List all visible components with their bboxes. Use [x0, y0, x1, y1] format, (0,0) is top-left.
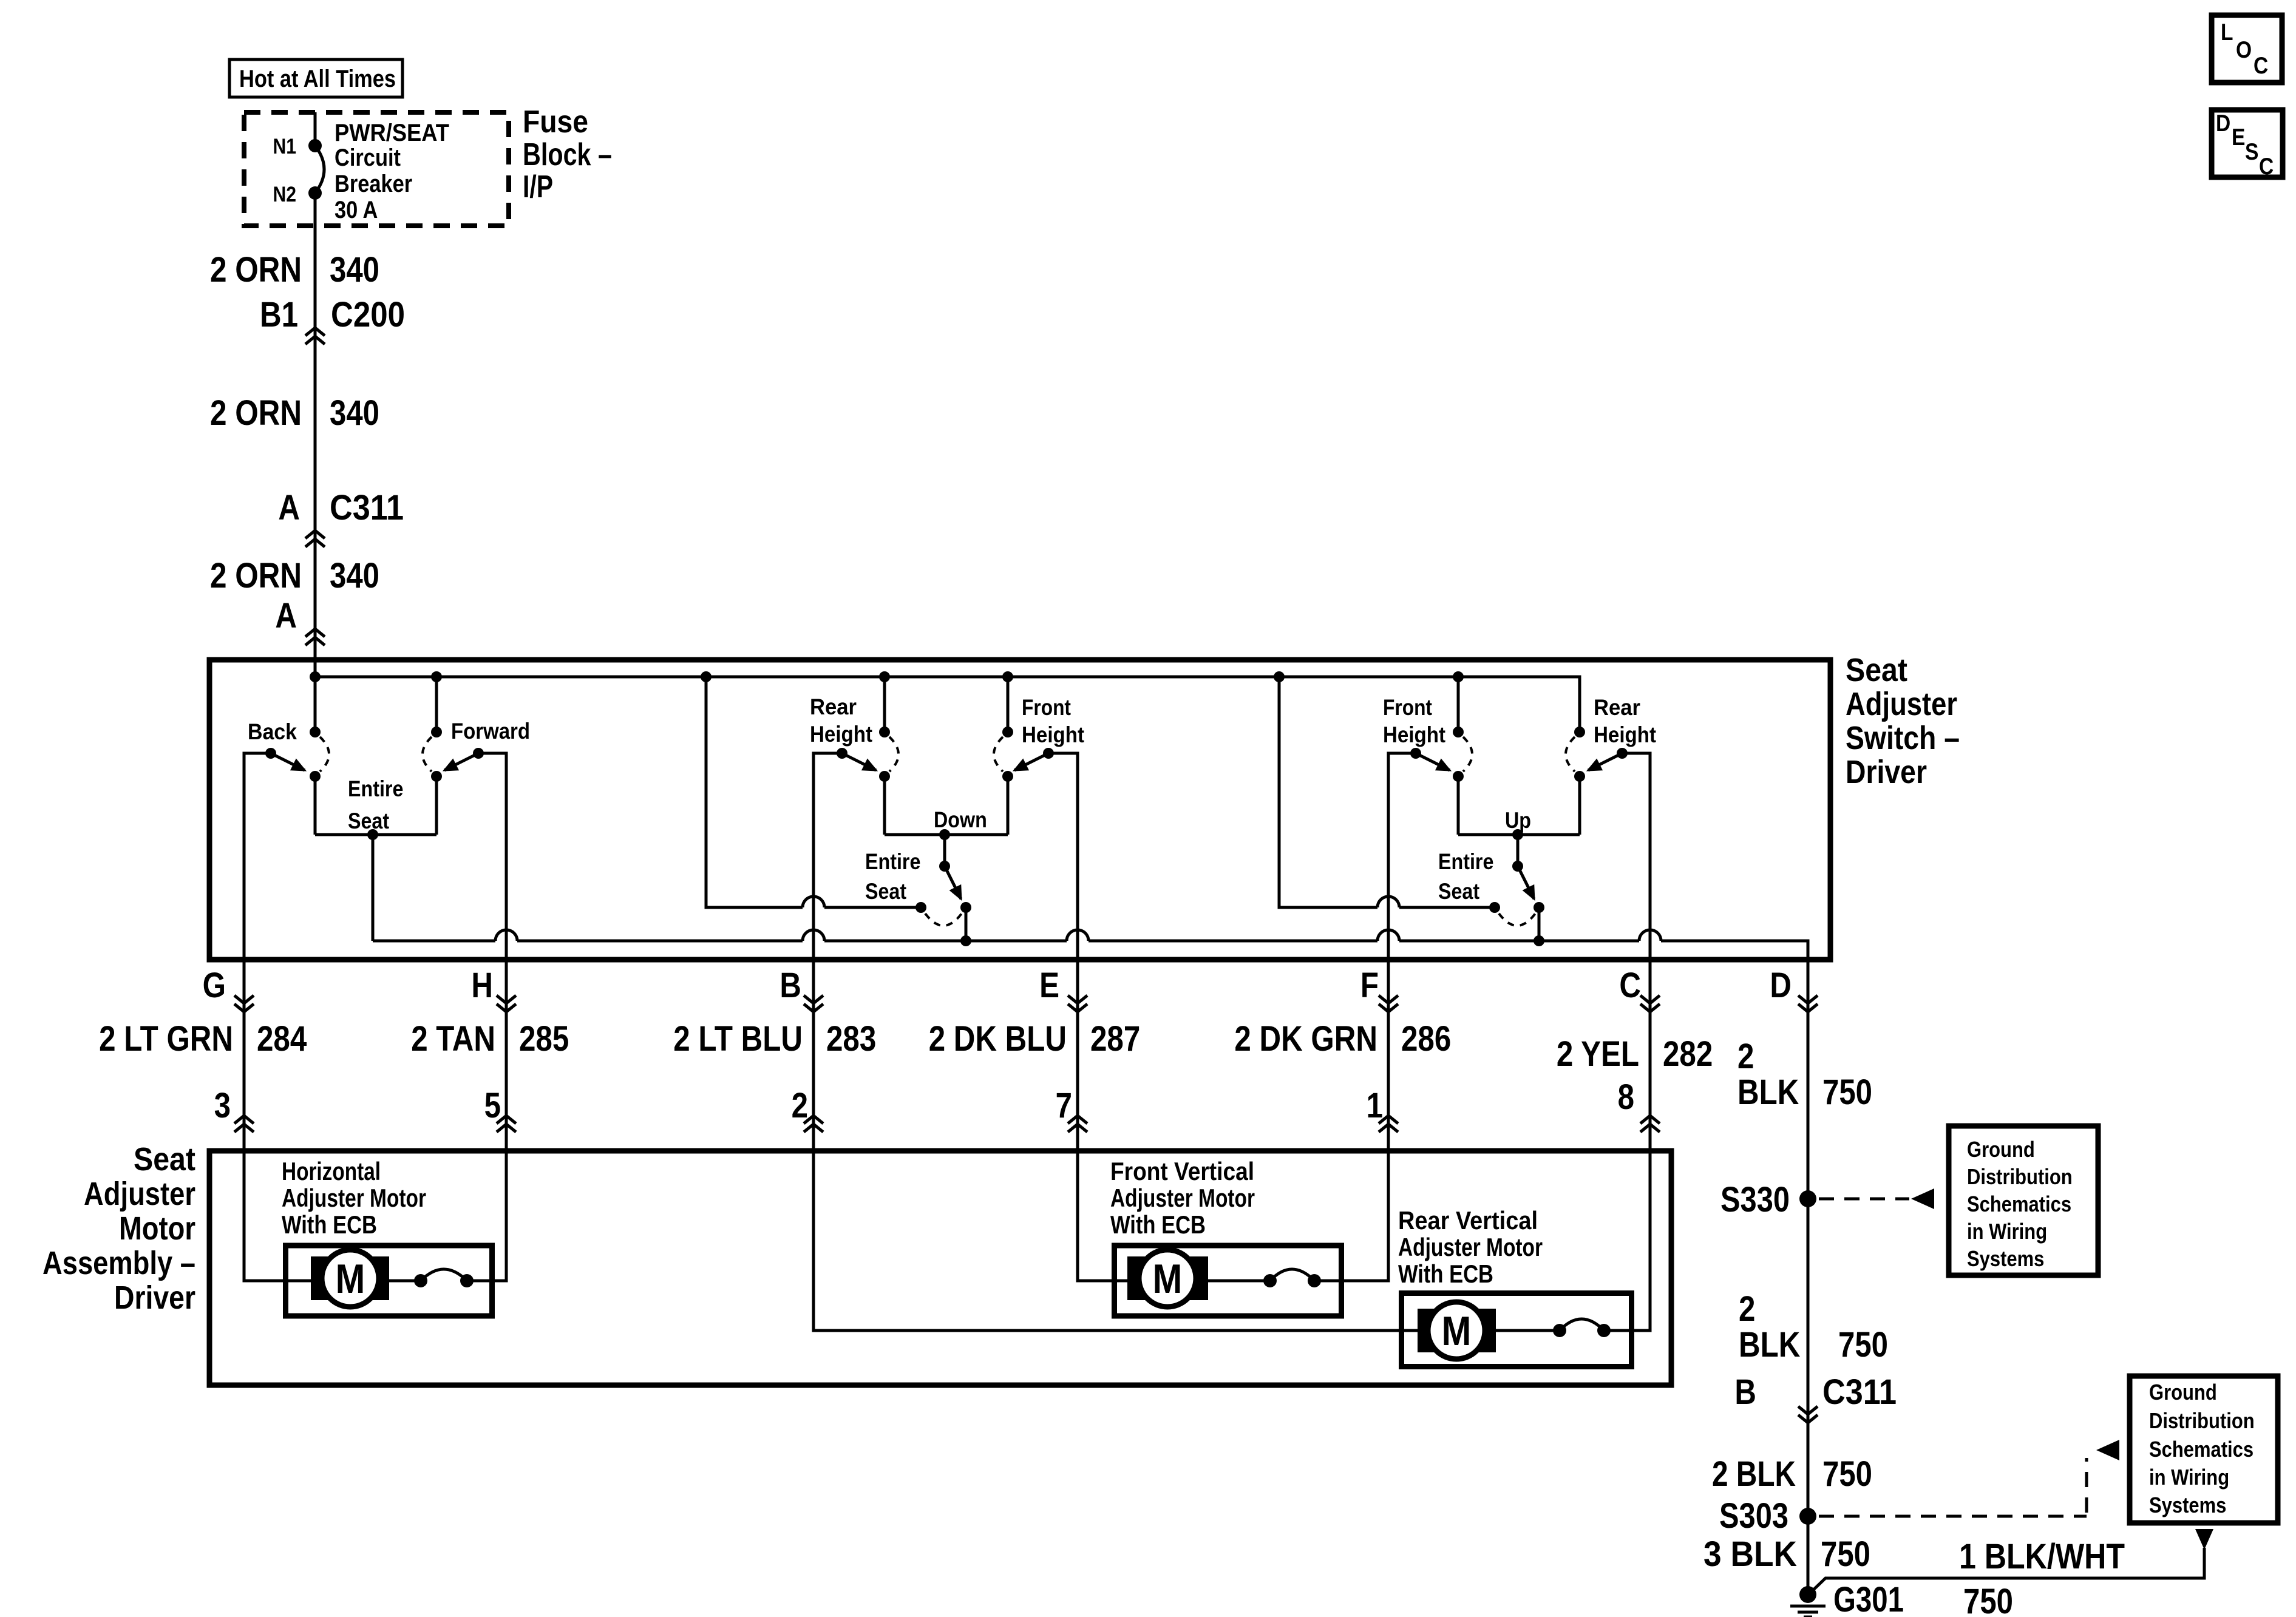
svg-text:Horizontal: Horizontal: [282, 1157, 381, 1185]
svg-text:Seat: Seat: [1846, 652, 1907, 688]
svg-text:285: 285: [519, 1019, 569, 1059]
svg-text:283: 283: [826, 1019, 876, 1059]
svg-text:F: F: [1360, 966, 1379, 1005]
svg-text:2 ORN: 2 ORN: [210, 250, 302, 290]
svg-text:M: M: [1153, 1256, 1183, 1302]
svg-text:M: M: [336, 1256, 365, 1302]
svg-text:340: 340: [330, 556, 379, 595]
svg-text:Adjuster Motor: Adjuster Motor: [1398, 1233, 1543, 1261]
svg-text:340: 340: [330, 250, 379, 290]
svg-text:Seat: Seat: [134, 1141, 195, 1178]
svg-text:With ECB: With ECB: [1398, 1259, 1493, 1288]
svg-text:Ground: Ground: [2149, 1380, 2217, 1405]
svg-text:2 ORN: 2 ORN: [210, 393, 302, 433]
svg-text:Height: Height: [1022, 722, 1084, 747]
svg-text:L: L: [2221, 19, 2233, 46]
svg-text:Schematics: Schematics: [1967, 1192, 2071, 1216]
svg-text:Driver: Driver: [114, 1280, 195, 1316]
svg-text:2 DK BLU: 2 DK BLU: [929, 1019, 1067, 1059]
svg-text:Height: Height: [810, 721, 872, 747]
svg-text:Ground: Ground: [1967, 1137, 2035, 1162]
svg-text:Seat: Seat: [348, 808, 390, 833]
svg-text:Entire: Entire: [348, 776, 403, 801]
svg-text:Height: Height: [1383, 722, 1445, 747]
svg-text:S303: S303: [1719, 1496, 1788, 1536]
svg-text:C: C: [2254, 53, 2268, 79]
svg-text:E: E: [1039, 966, 1059, 1005]
svg-text:286: 286: [1401, 1019, 1451, 1059]
svg-text:7: 7: [1056, 1086, 1072, 1125]
svg-text:BLK: BLK: [1737, 1073, 1799, 1112]
svg-text:3 BLK: 3 BLK: [1703, 1534, 1797, 1574]
svg-text:N1: N1: [273, 135, 297, 158]
svg-text:Back: Back: [248, 719, 297, 744]
svg-text:Adjuster Motor: Adjuster Motor: [282, 1184, 426, 1212]
svg-text:Motor: Motor: [119, 1210, 195, 1247]
svg-text:Rear: Rear: [1594, 694, 1640, 720]
svg-text:Fuse: Fuse: [523, 104, 588, 140]
svg-text:Adjuster: Adjuster: [84, 1176, 195, 1212]
svg-text:BLK: BLK: [1739, 1325, 1800, 1364]
svg-text:2 LT BLU: 2 LT BLU: [673, 1019, 803, 1059]
svg-text:Switch –: Switch –: [1846, 720, 1960, 756]
svg-text:Driver: Driver: [1846, 754, 1927, 790]
svg-text:2: 2: [792, 1086, 808, 1125]
svg-text:2 ORN: 2 ORN: [210, 556, 302, 595]
svg-text:1: 1: [1367, 1086, 1383, 1125]
svg-text:Down: Down: [934, 807, 987, 832]
svg-text:O: O: [2236, 37, 2252, 63]
svg-text:Entire: Entire: [1438, 849, 1493, 874]
svg-text:Adjuster Motor: Adjuster Motor: [1110, 1184, 1255, 1212]
svg-text:in Wiring: in Wiring: [2149, 1465, 2229, 1490]
svg-text:2: 2: [1739, 1289, 1755, 1329]
svg-text:Assembly –: Assembly –: [42, 1245, 195, 1281]
svg-text:A: A: [275, 596, 297, 636]
svg-text:Breaker: Breaker: [335, 171, 412, 197]
svg-text:2 YEL: 2 YEL: [1557, 1034, 1639, 1074]
svg-text:D: D: [2216, 110, 2230, 137]
svg-text:Schematics: Schematics: [2149, 1437, 2254, 1462]
svg-text:2: 2: [1737, 1037, 1754, 1076]
svg-text:S: S: [2245, 139, 2258, 165]
svg-text:H: H: [471, 966, 493, 1005]
svg-text:5: 5: [484, 1086, 501, 1125]
svg-text:S330: S330: [1720, 1180, 1790, 1219]
svg-text:Adjuster: Adjuster: [1846, 686, 1957, 722]
svg-text:Rear Vertical: Rear Vertical: [1398, 1206, 1538, 1235]
svg-text:With ECB: With ECB: [1110, 1210, 1206, 1239]
svg-text:Systems: Systems: [1967, 1246, 2044, 1271]
svg-text:30 A: 30 A: [335, 197, 378, 223]
svg-text:Systems: Systems: [2149, 1493, 2226, 1517]
svg-text:287: 287: [1090, 1019, 1140, 1059]
svg-text:C: C: [2259, 154, 2274, 180]
svg-text:B: B: [779, 966, 801, 1005]
svg-text:Forward: Forward: [451, 718, 530, 744]
svg-text:Front Vertical: Front Vertical: [1110, 1157, 1254, 1185]
svg-text:A: A: [278, 488, 300, 527]
svg-text:E: E: [2232, 124, 2245, 151]
svg-text:M: M: [1442, 1308, 1472, 1354]
svg-text:750: 750: [1838, 1325, 1888, 1364]
svg-text:2 TAN: 2 TAN: [411, 1019, 495, 1059]
svg-text:C311: C311: [330, 488, 404, 527]
svg-text:N2: N2: [273, 183, 297, 206]
svg-text:D: D: [1770, 966, 1792, 1005]
svg-text:B1: B1: [260, 295, 298, 334]
svg-text:Seat: Seat: [1438, 878, 1480, 904]
svg-text:With ECB: With ECB: [282, 1210, 377, 1239]
svg-text:Hot at All Times: Hot at All Times: [239, 66, 396, 92]
svg-text:Seat: Seat: [865, 878, 907, 904]
svg-text:PWR/SEAT: PWR/SEAT: [335, 120, 449, 146]
svg-text:3: 3: [214, 1086, 231, 1125]
svg-text:1 BLK/WHT: 1 BLK/WHT: [1959, 1537, 2125, 1576]
svg-text:C: C: [1619, 966, 1641, 1005]
svg-text:750: 750: [1822, 1454, 1872, 1494]
svg-text:C311: C311: [1822, 1372, 1897, 1412]
svg-text:C200: C200: [331, 295, 405, 334]
svg-text:Front: Front: [1383, 694, 1432, 720]
svg-text:750: 750: [1821, 1534, 1870, 1574]
svg-text:B: B: [1734, 1372, 1756, 1412]
svg-text:Distribution: Distribution: [1967, 1164, 2073, 1189]
svg-text:Up: Up: [1505, 807, 1531, 833]
svg-text:2 LT GRN: 2 LT GRN: [99, 1019, 233, 1059]
svg-text:in Wiring: in Wiring: [1967, 1219, 2047, 1244]
svg-text:Rear: Rear: [810, 694, 857, 719]
svg-text:750: 750: [1963, 1582, 2013, 1617]
svg-text:282: 282: [1663, 1034, 1713, 1074]
svg-text:Entire: Entire: [865, 849, 920, 874]
svg-text:Circuit: Circuit: [335, 144, 401, 171]
svg-text:750: 750: [1822, 1073, 1872, 1112]
svg-text:G: G: [203, 966, 226, 1005]
svg-text:G301: G301: [1833, 1580, 1904, 1617]
svg-text:2 DK GRN: 2 DK GRN: [1234, 1019, 1377, 1059]
svg-text:I/P: I/P: [523, 169, 553, 205]
svg-text:340: 340: [330, 393, 379, 433]
svg-text:Distribution: Distribution: [2149, 1408, 2255, 1433]
svg-text:Front: Front: [1022, 694, 1071, 720]
svg-text:8: 8: [1618, 1077, 1634, 1117]
svg-text:284: 284: [257, 1019, 307, 1059]
svg-text:Height: Height: [1594, 722, 1656, 747]
svg-text:2 BLK: 2 BLK: [1712, 1454, 1796, 1494]
svg-text:Block –: Block –: [523, 137, 612, 172]
